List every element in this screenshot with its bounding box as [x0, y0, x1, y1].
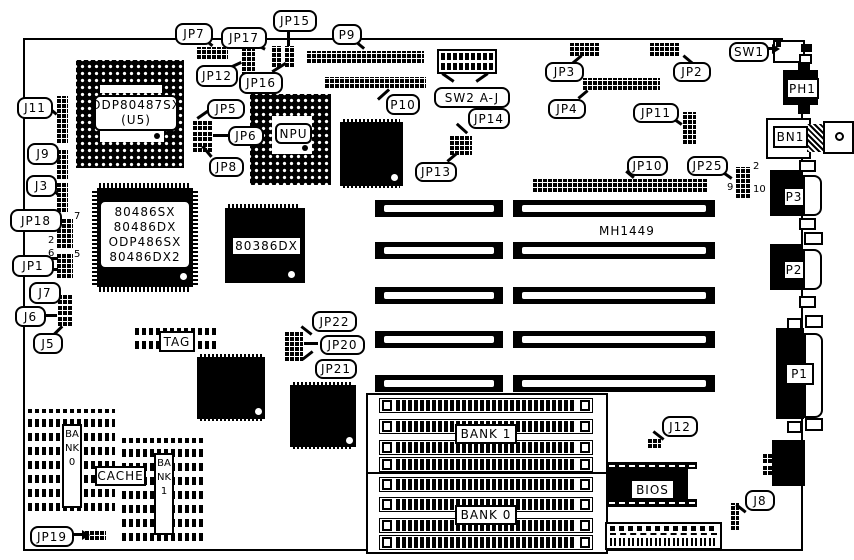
- jp25-pin10-number: 10: [753, 185, 766, 195]
- tag-label: TAG: [159, 331, 195, 352]
- connector-keyboard-din: [772, 440, 805, 486]
- callout-tail: [446, 152, 457, 162]
- jp4-text: JP4: [556, 102, 577, 116]
- power-connector-pins: [610, 538, 717, 546]
- p2-dshell: [803, 249, 822, 290]
- cache-bank1-label: BANK1: [154, 453, 174, 535]
- power-connector-dashes: [610, 533, 717, 535]
- callout-tail: [213, 134, 229, 137]
- isa-slot: [513, 287, 715, 304]
- callout-jp1: JP1: [12, 255, 54, 277]
- callout-jp15: JP15: [273, 10, 317, 32]
- odp80487sx-u5: (U5): [121, 113, 151, 128]
- callout-jp3: JP3: [545, 62, 584, 82]
- ph1-label: PH1: [786, 78, 819, 99]
- callout-jp14: JP14: [468, 108, 510, 129]
- sw2-dip-switch: [437, 49, 497, 74]
- jp5-text: JP5: [215, 102, 236, 116]
- sw2-row-bottom: [441, 63, 493, 70]
- callout-jp2: JP2: [673, 62, 711, 82]
- jp11-text: JP11: [641, 106, 671, 120]
- callout-tail: [301, 350, 313, 360]
- jp3-header: [570, 43, 600, 56]
- callout-jp16: JP16: [239, 72, 283, 94]
- j6-header: [58, 306, 73, 315]
- 386-label: 80386DX: [231, 236, 302, 256]
- npu-pin1-dot: [302, 145, 308, 151]
- odp80487sx-label: ODP80487SX (U5): [94, 95, 178, 131]
- callout-jp11: JP11: [633, 103, 679, 123]
- bn1-text: BN1: [777, 130, 805, 144]
- simm-socket: [379, 535, 593, 550]
- odp80487sx-text: ODP80487SX: [91, 98, 181, 113]
- callout-j12: J12: [662, 416, 698, 437]
- isa-slot: [375, 375, 503, 392]
- npu-text: NPU: [280, 127, 308, 141]
- tag-text: TAG: [164, 335, 191, 349]
- j11-header: [57, 96, 68, 143]
- power-connector-pads: [610, 526, 717, 531]
- callout-jp6: JP6: [228, 126, 264, 146]
- callout-j5: J5: [33, 333, 63, 354]
- callout-tail: [577, 89, 588, 99]
- simm-socket: [379, 457, 593, 472]
- callout-jp12: JP12: [196, 65, 238, 87]
- bios-dash-top: [609, 465, 695, 467]
- qfp-c-dot: [346, 437, 353, 444]
- isa-slot: [513, 331, 715, 348]
- j5-text: J5: [41, 337, 54, 351]
- callout-j8: J8: [745, 490, 775, 511]
- jp1-text: JP1: [22, 259, 43, 273]
- jp16-text: JP16: [246, 76, 276, 90]
- j3-header: [57, 183, 68, 212]
- j9-text: J9: [36, 147, 49, 161]
- jp5-header: [193, 121, 212, 130]
- p10-connector: [325, 77, 426, 88]
- board-edge-top: [23, 38, 783, 40]
- jp2-header: [650, 43, 680, 56]
- callout-sw2: SW2 A-J: [434, 87, 510, 108]
- edge-tab: [787, 421, 802, 433]
- callout-jp10: JP10: [627, 156, 668, 176]
- memory-bank0-label: BANK 0: [455, 505, 517, 525]
- callout-j9: J9: [27, 143, 59, 165]
- jp14-jp13-header: [450, 136, 472, 155]
- j7-text: J7: [38, 286, 51, 300]
- power-connector: [605, 522, 722, 550]
- isa-slot: [375, 331, 503, 348]
- callout-jp21: JP21: [315, 359, 357, 379]
- jp11-header: [683, 112, 696, 144]
- jp2-text: JP2: [681, 65, 702, 79]
- jp21-text: JP21: [321, 362, 351, 376]
- ph1-text: PH1: [789, 82, 816, 96]
- bios-label: BIOS: [630, 479, 675, 500]
- bnc-pin: [835, 132, 844, 141]
- cpu-line3: ODP486SX: [109, 235, 182, 250]
- jp10-text: JP10: [632, 159, 662, 173]
- 386-text: 80386DX: [235, 239, 298, 253]
- socket-slot-bar: [100, 85, 162, 93]
- callout-j3: J3: [26, 175, 57, 197]
- jp25-header: [736, 167, 751, 198]
- p3-text: P3: [786, 190, 803, 204]
- jp1-pin5-number: 5: [74, 250, 80, 260]
- jp8-text: JP8: [216, 160, 237, 174]
- callout-j6: J6: [15, 306, 46, 327]
- npu-label: NPU: [275, 123, 312, 144]
- jp13-text: JP13: [421, 165, 451, 179]
- jp6-text: JP6: [235, 129, 256, 143]
- memory-bank1-label: BANK 1: [455, 424, 517, 444]
- callout-jp8: JP8: [209, 157, 244, 177]
- p9-text: P9: [339, 28, 356, 42]
- jp25-pin2-number: 2: [753, 162, 759, 172]
- jp18-pin7-number: 7: [74, 212, 80, 222]
- p3-dshell: [803, 175, 822, 216]
- p3-label: P3: [783, 187, 805, 207]
- callout-jp19: JP19: [30, 526, 74, 547]
- jp15-text: JP15: [280, 14, 310, 28]
- callout-j11: J11: [17, 97, 53, 119]
- bios-text: BIOS: [636, 483, 669, 497]
- callout-jp4: JP4: [548, 99, 586, 119]
- j6-text: J6: [24, 310, 37, 324]
- bank0-text: BANK 0: [461, 508, 512, 522]
- callout-tail: [456, 123, 468, 135]
- p10-text: P10: [390, 98, 416, 112]
- cache-label: CACHE: [95, 466, 146, 486]
- bank1-text: BANK 1: [461, 427, 512, 441]
- callout-sw1: SW1: [729, 42, 769, 62]
- jp19-text: JP19: [37, 530, 67, 544]
- bn1-label: BN1: [773, 126, 808, 148]
- p1-label: P1: [785, 363, 814, 385]
- sw1-text: SW1: [734, 45, 764, 59]
- callout-jp7: JP7: [175, 23, 213, 45]
- jp3-text: JP3: [554, 65, 575, 79]
- j12-connector: [648, 439, 661, 448]
- cache-text: CACHE: [97, 469, 143, 483]
- bios-dash-bottom: [609, 502, 695, 504]
- jp18-text: JP18: [21, 214, 51, 228]
- isa-slot: [513, 375, 715, 392]
- jp20-text: JP20: [327, 338, 357, 352]
- cache-bank0-label: BANK0: [62, 424, 82, 508]
- callout-j7: J7: [29, 282, 61, 304]
- bnc-barrel: [807, 124, 823, 152]
- board-marking-text: MH1449: [599, 224, 655, 238]
- callout-jp13: JP13: [415, 162, 457, 182]
- callout-arrowhead: [82, 530, 90, 540]
- isa-slot: [375, 242, 503, 259]
- callout-p9: P9: [332, 24, 362, 45]
- jp25-pin9-number: 9: [727, 183, 733, 193]
- jp12-text: JP12: [202, 69, 232, 83]
- cpu-line4: 80486DX2: [109, 250, 180, 265]
- jp7-text: JP7: [183, 27, 204, 41]
- edge-tab: [799, 296, 816, 308]
- callout-jp5: JP5: [207, 99, 245, 119]
- ph1-tab-bottom: [798, 105, 810, 114]
- jp22-jp20-jp21-header: [285, 331, 303, 361]
- edge-tab: [805, 418, 823, 431]
- callout-p10: P10: [386, 94, 420, 115]
- jp25-text: JP25: [692, 159, 722, 173]
- j3-text: J3: [35, 179, 48, 193]
- jp10-header: [533, 179, 708, 192]
- jp4-header: [583, 78, 660, 90]
- simm-socket: [379, 477, 593, 492]
- edge-tab: [799, 218, 816, 230]
- qfp-b-dot: [255, 408, 262, 415]
- isa-slot: [375, 287, 503, 304]
- callout-jp22: JP22: [312, 311, 357, 332]
- j11-text: J11: [24, 101, 46, 115]
- callout-jp25: JP25: [687, 156, 728, 176]
- cpu-line2: 80486DX: [114, 220, 177, 235]
- sw2-row-top: [441, 53, 493, 60]
- socket-pin1-dot: [154, 133, 160, 139]
- edge-tab: [804, 232, 823, 245]
- edge-tab: [805, 315, 823, 328]
- callout-jp20: JP20: [320, 335, 365, 355]
- jp6-header: [193, 132, 212, 141]
- jp7-header: [197, 47, 228, 59]
- sw2-text: SW2 A-J: [445, 91, 499, 105]
- jp17-text: JP17: [229, 31, 259, 45]
- p1-text: P1: [791, 367, 808, 381]
- isa-slot: [375, 200, 503, 217]
- 386-pin1-dot: [288, 271, 295, 278]
- p9-connector: [307, 51, 424, 63]
- callout-tail: [304, 342, 318, 345]
- cpu-pin1-dot: [180, 273, 187, 280]
- sw1-tab: [801, 44, 812, 52]
- jp14-text: JP14: [474, 112, 504, 126]
- bios-notch: [688, 469, 697, 499]
- cpu-line1: 80486SX: [114, 205, 175, 220]
- p2-text: P2: [786, 263, 803, 277]
- j8-text: J8: [753, 494, 766, 508]
- callout-jp17: JP17: [221, 27, 267, 49]
- qfp-a-dot: [391, 174, 398, 181]
- motherboard-diagram: ODP80487SX (U5) NPU 80486SX 80486DX ODP4…: [0, 0, 854, 560]
- jp18-pin2-number: 2: [48, 236, 54, 246]
- callout-jp18: JP18: [10, 209, 62, 232]
- isa-slot: [513, 242, 715, 259]
- jp22-text: JP22: [319, 315, 349, 329]
- jp1-header: [57, 253, 73, 278]
- cpu-pins-bottom: [99, 287, 191, 292]
- simm-socket: [379, 398, 593, 413]
- callout-arrowhead: [772, 44, 780, 54]
- p2-label: P2: [783, 260, 805, 280]
- isa-slot: [513, 200, 715, 217]
- j12-text: J12: [669, 420, 691, 434]
- cpu-label: 80486SX 80486DX ODP486SX 80486DX2: [99, 200, 191, 269]
- cpu-pins-right: [193, 190, 198, 285]
